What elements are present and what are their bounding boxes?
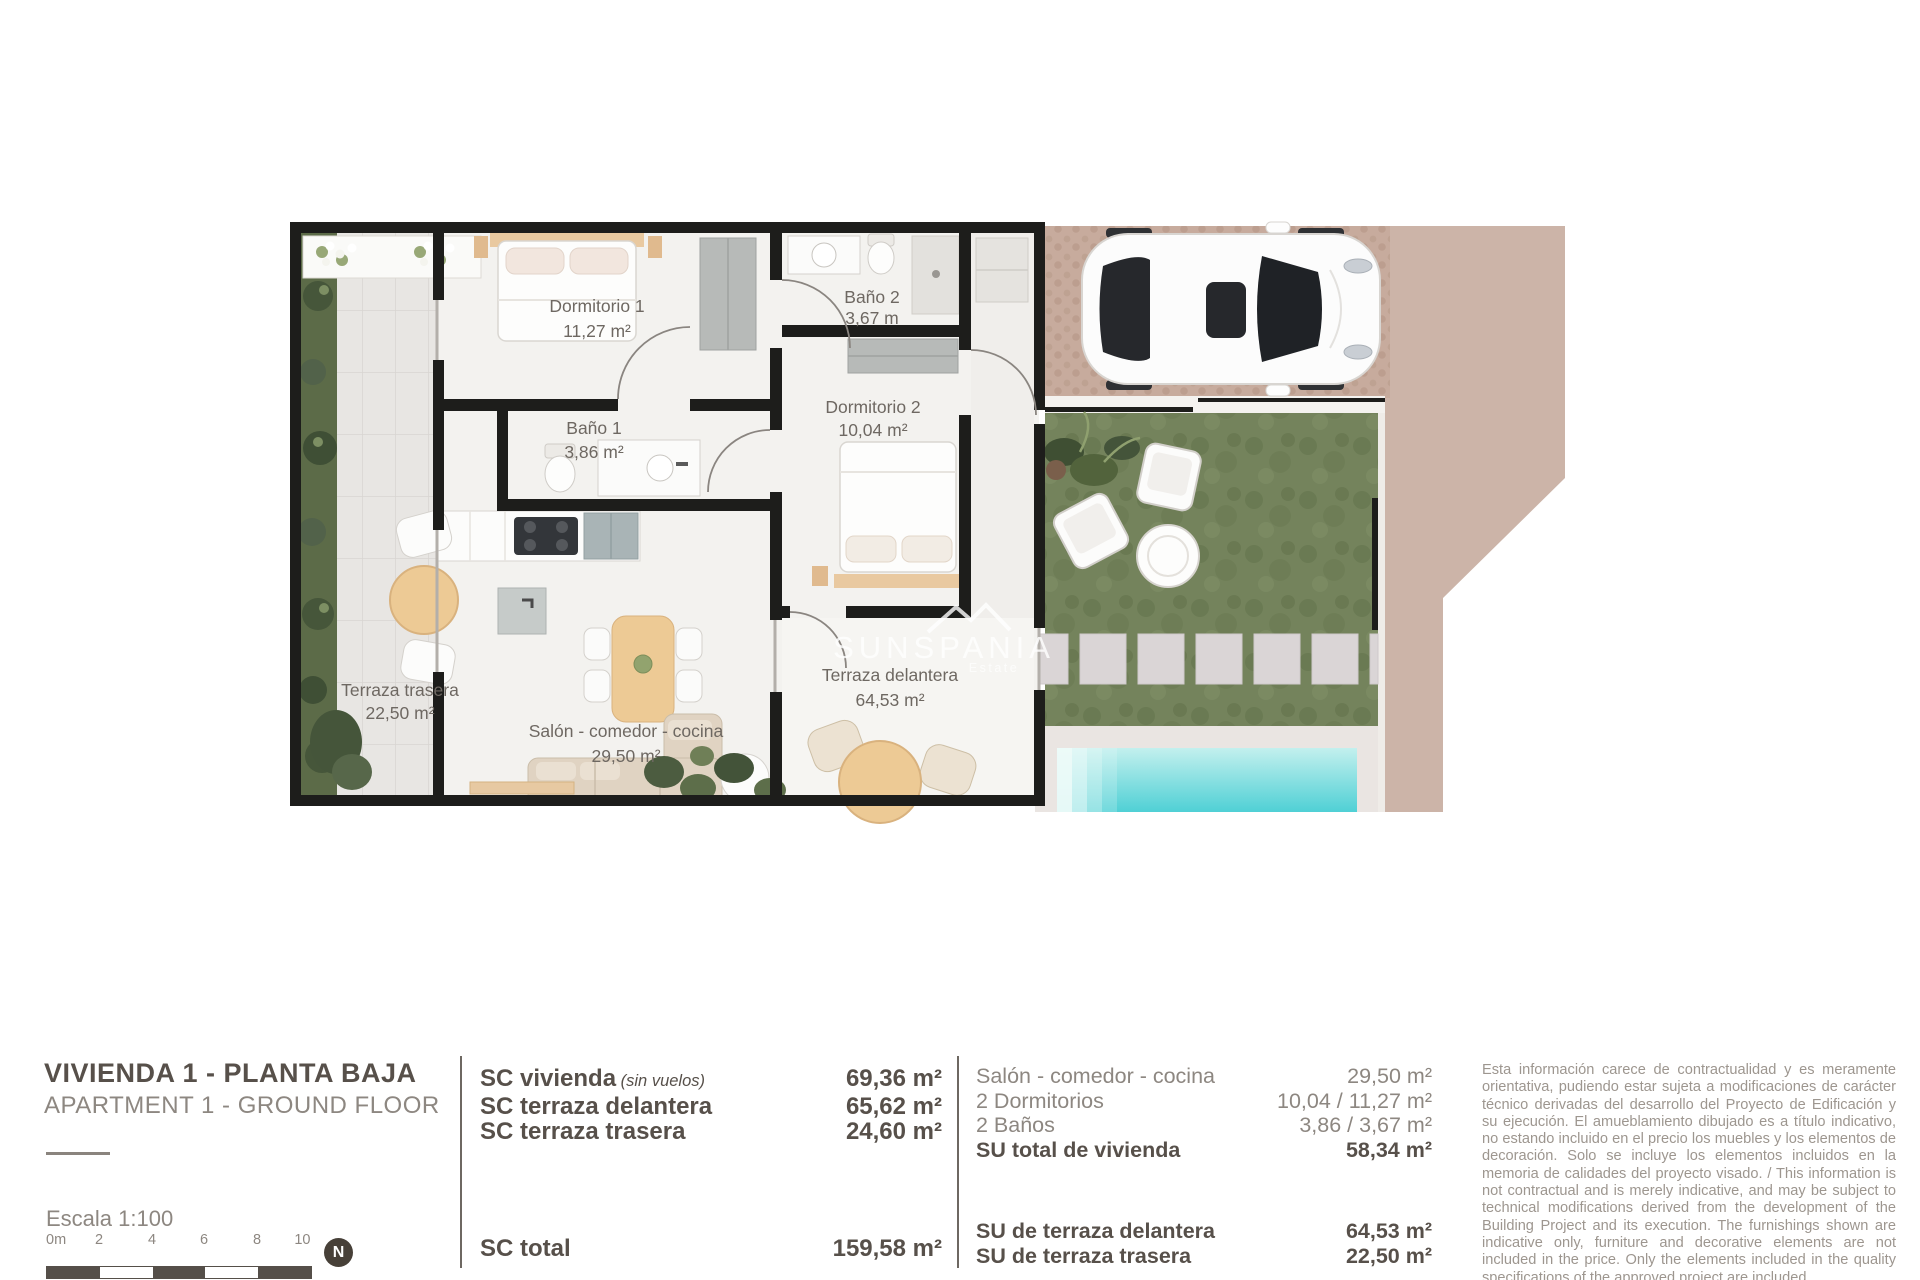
disclaimer-text: Esta información carece de contractualid…	[1482, 1062, 1896, 1280]
scale-tick: 0m	[46, 1232, 66, 1248]
sc-label: SC terraza delantera	[480, 1094, 712, 1119]
su-value: 3,86 / 3,67 m²	[1299, 1113, 1432, 1138]
plan-title: VIVIENDA 1 - PLANTA BAJA	[44, 1058, 417, 1089]
sc-value: 65,62 m²	[846, 1094, 942, 1119]
su-table: Salón - comedor - cocina 29,50 m² 2 Dorm…	[976, 1064, 1432, 1269]
sc-value: 24,60 m²	[846, 1119, 942, 1144]
su-row-dormitorios: 2 Dormitorios 10,04 / 11,27 m²	[976, 1089, 1432, 1114]
scale-label: Escala 1:100	[46, 1206, 173, 1232]
su-value: 58,34 m²	[1346, 1138, 1432, 1163]
su-value: 29,50 m²	[1347, 1064, 1432, 1089]
divider-dash	[46, 1152, 110, 1155]
room-label-terraza-trasera: Terraza trasera	[341, 680, 459, 700]
scale-tick: 4	[148, 1232, 156, 1248]
sc-label: SC vivienda	[480, 1065, 616, 1092]
sc-table: SC vivienda (sin vuelos) 69,36 m² SC ter…	[480, 1066, 942, 1261]
divider-line-1	[460, 1056, 462, 1268]
room-area-dormitorio1: 11,27 m²	[563, 321, 631, 341]
room-area-bano1: 3,86 m²	[564, 442, 623, 462]
su-label: SU total de vivienda	[976, 1138, 1180, 1163]
su-label: SU de terraza trasera	[976, 1244, 1191, 1269]
su-row-salon: Salón - comedor - cocina 29,50 m²	[976, 1064, 1432, 1089]
divider-line-2	[957, 1056, 959, 1268]
watermark-sub: Estate	[969, 661, 1019, 675]
sc-value: 69,36 m²	[846, 1066, 942, 1094]
room-area-salon: 29,50 m²	[591, 746, 660, 766]
su-row-terraza-delantera: SU de terraza delantera 64,53 m²	[976, 1219, 1432, 1244]
coffee-table	[1137, 525, 1199, 587]
scale-tick: 2	[95, 1232, 103, 1248]
su-value: 10,04 / 11,27 m²	[1277, 1089, 1432, 1114]
sc-label: SC terraza trasera	[480, 1119, 685, 1144]
sc-note: (sin vuelos)	[616, 1072, 705, 1090]
car-mirror	[1266, 385, 1290, 396]
su-label: Salón - comedor - cocina	[976, 1064, 1215, 1089]
floor-plan-sheet: SUNSPANIA Estate Dormitorio 1 11,27 m² B…	[0, 0, 1920, 1280]
sc-total-value: 159,58 m²	[833, 1236, 942, 1261]
su-value: 22,50 m²	[1346, 1244, 1432, 1269]
pool	[1035, 726, 1378, 812]
su-label: 2 Dormitorios	[976, 1089, 1104, 1114]
room-label-salon: Salón - comedor - cocina	[529, 721, 724, 741]
sc-row-terraza-delantera: SC terraza delantera 65,62 m²	[480, 1094, 942, 1119]
room-label-terraza-delantera: Terraza delantera	[822, 665, 958, 685]
scale-tick: 8	[253, 1232, 261, 1248]
room-area-dormitorio2: 10,04 m²	[838, 420, 907, 440]
north-indicator: N	[324, 1238, 353, 1267]
su-value: 64,53 m²	[1346, 1219, 1432, 1244]
room-area-terraza-delantera: 64,53 m²	[855, 690, 924, 710]
car-sunroof	[1206, 282, 1246, 338]
room-area-terraza-trasera: 22,50 m²	[365, 703, 434, 723]
scale-ticks: 0m 2 4 6 8 10	[46, 1232, 312, 1248]
car-rear-window	[1100, 257, 1151, 361]
sc-row-terraza-trasera: SC terraza trasera 24,60 m²	[480, 1119, 942, 1144]
su-row-total-vivienda: SU total de vivienda 58,34 m²	[976, 1138, 1432, 1163]
su-label: 2 Baños	[976, 1113, 1055, 1138]
scale-bar	[46, 1266, 312, 1279]
plan-subtitle: APARTMENT 1 - GROUND FLOOR	[44, 1092, 440, 1120]
watermark-brand: SUNSPANIA	[833, 630, 1055, 665]
scale-tick: 10	[294, 1232, 310, 1248]
su-row-terraza-trasera: SU de terraza trasera 22,50 m²	[976, 1244, 1432, 1269]
smooth-paving	[1385, 226, 1565, 812]
room-label-dormitorio2: Dormitorio 2	[825, 397, 920, 417]
car-mirror	[1266, 222, 1290, 233]
su-row-banos: 2 Baños 3,86 / 3,67 m²	[976, 1113, 1432, 1138]
room-area-bano2: 3,67 m	[845, 308, 899, 328]
room-label-bano1: Baño 1	[566, 418, 621, 438]
car-windshield	[1257, 256, 1322, 362]
sc-total-row: SC total 159,58 m²	[480, 1236, 942, 1261]
scale-tick: 6	[200, 1232, 208, 1248]
sc-row-vivienda: SC vivienda (sin vuelos) 69,36 m²	[480, 1066, 942, 1094]
su-label: SU de terraza delantera	[976, 1219, 1215, 1244]
room-label-dormitorio1: Dormitorio 1	[549, 296, 644, 316]
sc-total-label: SC total	[480, 1236, 571, 1261]
car	[1082, 222, 1380, 396]
room-label-bano2: Baño 2	[844, 287, 899, 307]
